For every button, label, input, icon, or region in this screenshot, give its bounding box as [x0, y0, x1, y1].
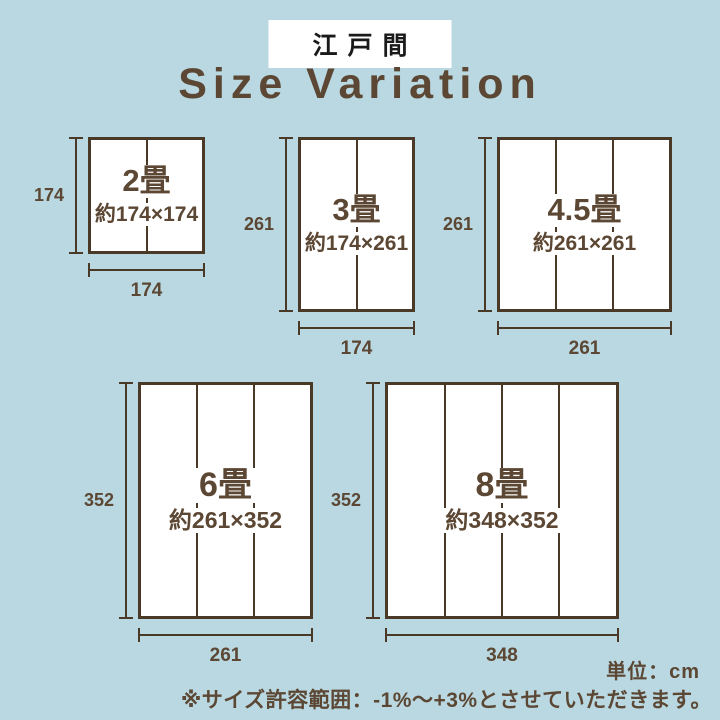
- width-dimension-line: [88, 263, 205, 277]
- rect-text: 4.5畳 約261×261: [500, 140, 669, 309]
- panel-3jo: 261 3畳 約174×261 174: [244, 137, 415, 360]
- tatami-rect-4-5jo: 4.5畳 約261×261: [497, 137, 672, 312]
- mat-count-label: 3畳: [328, 194, 384, 227]
- tatami-rect-8jo: 8畳 約348×352: [385, 382, 619, 619]
- panel-6jo: 352 6畳 約261×352 261: [84, 382, 313, 667]
- height-dimension-label: 261: [443, 137, 473, 312]
- rect-text: 6畳 約261×352: [141, 385, 310, 616]
- tatami-rect-3jo: 3畳 約174×261: [298, 137, 415, 312]
- tolerance-note: ※サイズ許容範囲：-1%〜+3%とさせていただきます。: [181, 684, 712, 714]
- rect-text: 3畳 約174×261: [301, 140, 412, 309]
- panel-8jo: 352 8畳 約348×352 348: [331, 382, 619, 667]
- panel-4-5jo: 261 4.5畳 約261×261 261: [443, 137, 672, 360]
- width-dimension-label: 174: [298, 338, 415, 360]
- rect-text: 8畳 約348×352: [388, 385, 616, 616]
- size-variation-page: { "page": { "badge": "江戸間", "title": "Si…: [0, 0, 720, 720]
- width-dimension-line: [298, 321, 415, 335]
- mat-size-label: 約261×261: [530, 232, 639, 255]
- mat-size-label: 約261×352: [166, 508, 285, 533]
- mat-count-label: 2畳: [118, 165, 174, 198]
- unit-note: 単位：cm: [606, 655, 700, 684]
- mat-count-label: 4.5畳: [543, 194, 625, 227]
- width-dimension-line: [138, 628, 313, 642]
- mat-count-label: 6畳: [195, 468, 256, 504]
- mat-size-label: 約348×352: [442, 508, 561, 533]
- width-dimension-line: [385, 628, 619, 642]
- panel-2jo: 174 2畳 約174×174 174: [34, 137, 205, 302]
- mat-count-label: 8畳: [472, 468, 533, 504]
- height-dimension-line: [366, 382, 380, 619]
- height-dimension-label: 261: [244, 137, 274, 312]
- width-dimension-label: 348: [385, 645, 619, 667]
- height-dimension-label: 352: [84, 382, 114, 619]
- height-dimension-label: 352: [331, 382, 361, 619]
- tatami-rect-6jo: 6畳 約261×352: [138, 382, 313, 619]
- mat-size-label: 約174×174: [92, 203, 201, 226]
- width-dimension-label: 261: [138, 645, 313, 667]
- height-dimension-line: [478, 137, 492, 312]
- tatami-rect-2jo: 2畳 約174×174: [88, 137, 205, 254]
- page-title: Size Variation: [0, 60, 720, 109]
- height-dimension-line: [119, 382, 133, 619]
- width-dimension-label: 174: [88, 280, 205, 302]
- rect-text: 2畳 約174×174: [91, 140, 202, 251]
- width-dimension-line: [497, 321, 672, 335]
- height-dimension-line: [279, 137, 293, 312]
- mat-size-label: 約174×261: [302, 232, 411, 255]
- height-dimension-label: 174: [34, 137, 64, 254]
- width-dimension-label: 261: [497, 338, 672, 360]
- height-dimension-line: [69, 137, 83, 254]
